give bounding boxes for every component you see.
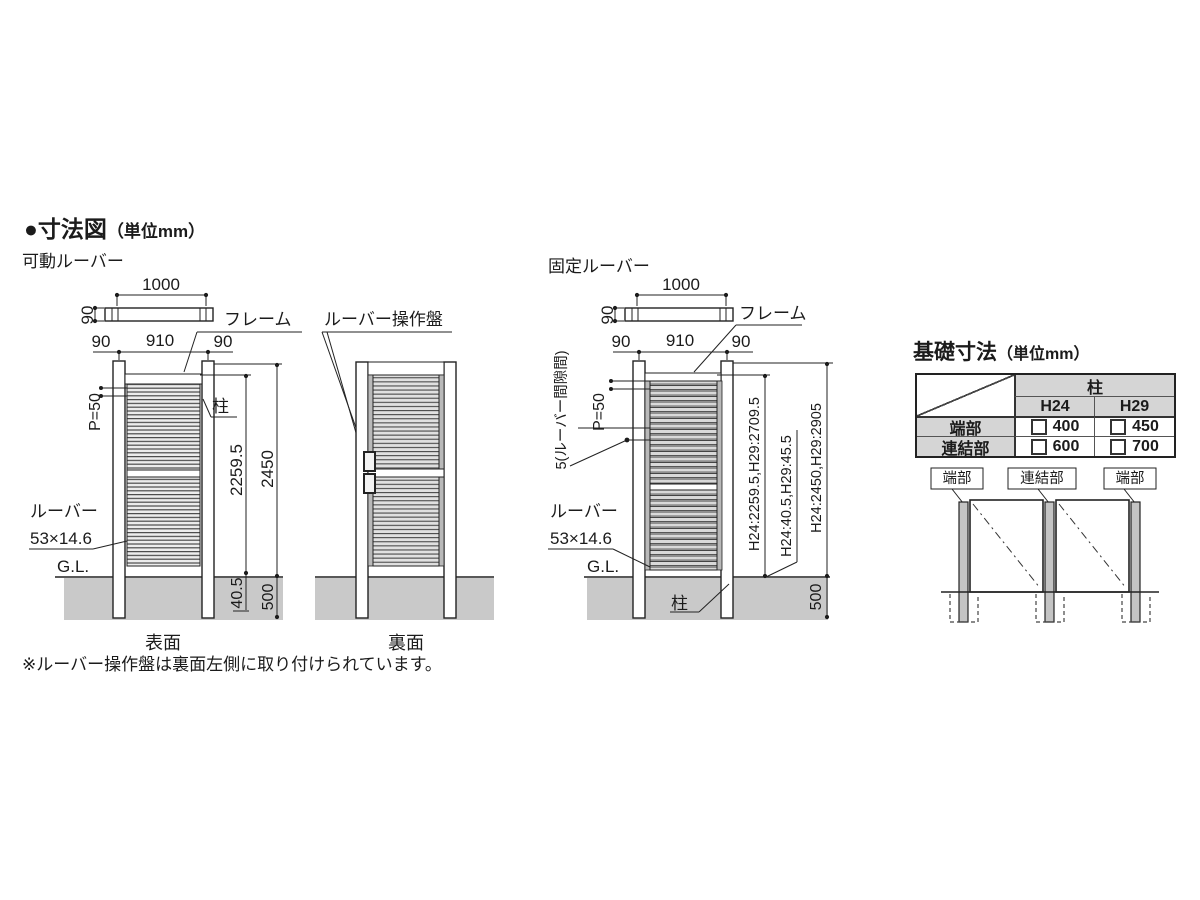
width-dimensions-fixed: 910 90 90 (612, 331, 753, 360)
width-dimensions: 910 90 90 (92, 331, 233, 360)
frame-label-fixed: フレーム (739, 304, 807, 323)
fixed-louver-view: 1000 90 フレーム G.L. P=50 5( (548, 275, 833, 620)
post-right-back (444, 362, 456, 618)
table-cell-end-h29: 450 (1094, 416, 1174, 436)
foundation-title-main: 基礎寸法 (913, 341, 997, 364)
ground-fixed (587, 578, 828, 620)
frame-top-rail-back (368, 362, 444, 375)
dim-top-depth: 90 (78, 306, 97, 325)
dim-total-height: 2450 (258, 450, 277, 488)
gap-label: 5(ルーバー間隙間) (553, 350, 570, 469)
footnote: ※ルーバー操作盤は裏面左側に取り付けられています。 (22, 650, 442, 675)
square-section-icon (1031, 419, 1047, 435)
foundation-post-left (959, 502, 968, 622)
movable-back-view: ルーバー操作盤 (315, 310, 494, 620)
plan-frame-bar (105, 308, 213, 321)
end-label-right: 端部 (1116, 470, 1145, 487)
table-diagonal-cell (917, 375, 1014, 416)
movable-plan-view: 1000 90 (78, 275, 213, 324)
page-title-main: ●寸法図 (24, 216, 107, 242)
dim-top-width: 1000 (142, 275, 180, 294)
plan-frame-bar-fixed (625, 308, 733, 321)
dim-left-post: 90 (92, 332, 111, 351)
louver-label: ルーバー (30, 502, 98, 521)
end-label-left: 端部 (943, 470, 972, 487)
value-joint-h24: 600 (1053, 438, 1080, 456)
post-left (113, 361, 125, 618)
post-right-fixed (721, 361, 733, 618)
table-rowlabel-joint: 連結部 (917, 436, 1014, 456)
operator-box-upper (364, 452, 375, 471)
table-cell-joint-h24: 600 (1014, 436, 1094, 456)
fixed-plan-view: 1000 90 (598, 275, 733, 324)
foundation-post-right (1131, 502, 1140, 622)
dim-bottom-gap-fixed: H24:40.5,H29:45.5 (779, 435, 795, 557)
dim-embed-fixed: 500 (808, 584, 825, 611)
dim-pitch-fixed: P=50 (591, 393, 608, 431)
table-cell-joint-h29: 700 (1094, 436, 1174, 456)
operator-label: ルーバー操作盤 (324, 310, 443, 329)
foundation-title-unit: （単位mm） (997, 346, 1089, 363)
movable-front-view: 1000 90 フレーム G.L. P=50 (29, 275, 302, 620)
table-cell-end-h24: 400 (1014, 416, 1094, 436)
ground-back (315, 578, 494, 620)
table-header-h29: H29 (1094, 397, 1174, 416)
foundation-diagram: 端部 連結部 端部 (931, 468, 1159, 622)
louver-size-fixed: 53×14.6 (550, 529, 612, 548)
frame-top-rail (125, 374, 202, 384)
dim-embed: 500 (260, 584, 277, 611)
dim-pitch: P=50 (87, 393, 104, 431)
dimension-sheet: 1000 90 フレーム G.L. P=50 (0, 0, 1200, 900)
post-left-fixed (633, 361, 645, 618)
page-title-unit: （単位mm） (107, 222, 205, 241)
dim-panel-width: 910 (146, 331, 174, 350)
square-section-icon (1110, 439, 1126, 455)
operator-box-lower (364, 474, 375, 493)
ground-front (64, 578, 283, 620)
dim-top-width-fixed: 1000 (662, 275, 700, 294)
mid-rail (127, 470, 200, 477)
table-header-pillar: 柱 (1014, 375, 1174, 397)
section-joint-fixed (650, 484, 717, 490)
frame-side-left-fixed (645, 381, 650, 570)
dim-left-post-fixed: 90 (612, 332, 631, 351)
gl-label-fixed: G.L. (587, 557, 619, 576)
post-label-fixed: 柱 (671, 594, 688, 613)
dim-panel-height-fixed: H24:2259.5,H29:2709.5 (747, 397, 763, 551)
dim-panel-width-fixed: 910 (666, 331, 694, 350)
value-joint-h29: 700 (1132, 438, 1159, 456)
foundation-table: 柱 H24 H29 端部 400 450 連結部 600 700 (915, 373, 1176, 458)
page-title: ●寸法図（単位mm） (24, 210, 205, 244)
section-label-fixed: 固定ルーバー (548, 252, 650, 277)
louver-label-fixed: ルーバー (550, 502, 618, 521)
value-end-h24: 400 (1053, 418, 1080, 436)
table-header-h24: H24 (1014, 397, 1094, 416)
square-section-icon (1031, 439, 1047, 455)
value-end-h29: 450 (1132, 418, 1159, 436)
mid-rail-back (368, 469, 444, 477)
frame-label: フレーム (224, 310, 292, 329)
joint-label: 連結部 (1020, 470, 1064, 487)
dim-bottom-gap: 40.5 (229, 577, 246, 608)
dim-right-post: 90 (214, 332, 233, 351)
frame-side-right-fixed (717, 381, 722, 570)
dim-total-height-fixed: H24:2450,H29:2905 (809, 403, 825, 533)
foundation-title: 基礎寸法（単位mm） (913, 336, 1089, 366)
table-rowlabel-end: 端部 (917, 416, 1014, 436)
foundation-post-middle (1045, 502, 1054, 622)
louver-panel-fixed (650, 381, 717, 570)
frame-top-rail-fixed (645, 373, 721, 381)
square-section-icon (1110, 419, 1126, 435)
dim-top-depth-fixed: 90 (598, 306, 617, 325)
post-label: 柱 (212, 397, 229, 416)
section-label-movable: 可動ルーバー (22, 247, 124, 272)
dim-panel-height: 2259.5 (227, 444, 246, 496)
dim-right-post-fixed: 90 (732, 332, 751, 351)
louver-size: 53×14.6 (30, 529, 92, 548)
gl-label-front: G.L. (57, 557, 89, 576)
